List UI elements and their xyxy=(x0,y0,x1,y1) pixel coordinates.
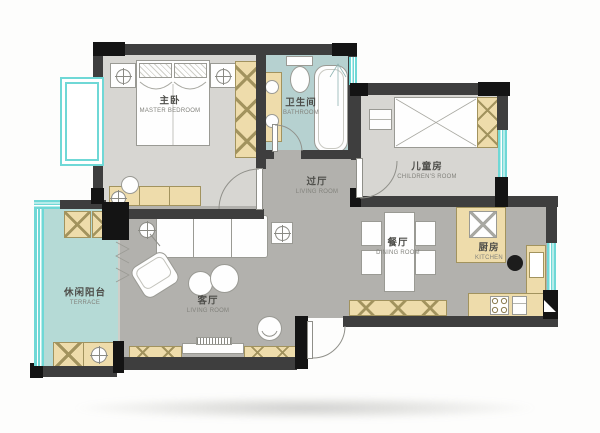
hallway-label-zh: 过厅 xyxy=(292,178,342,189)
dining-room-label-en: DINING ROOM xyxy=(376,249,420,256)
floor-lamp-icon xyxy=(139,222,155,238)
bathroom-door-leaf xyxy=(272,124,278,152)
stool xyxy=(121,176,139,194)
window-balcony-corner xyxy=(34,200,60,209)
entry-door-leaf xyxy=(307,321,313,359)
balcony-cabinet xyxy=(64,211,91,238)
balcony-label-en: TERRACE xyxy=(67,299,103,306)
floor-plan: 主卧 MASTER BEDROOM 卫生间 BATHROOM 儿童房 CHILD… xyxy=(0,0,600,433)
master-bedroom-label: 主卧 MASTER BEDROOM xyxy=(134,97,205,116)
wall-balcony-bottom xyxy=(33,366,117,377)
wall-children-bottom xyxy=(350,196,558,207)
desk xyxy=(369,109,392,130)
wall-children-right xyxy=(497,95,508,130)
coffee-table xyxy=(188,271,213,296)
kitchen-sink xyxy=(507,255,523,271)
dining-room-label: 餐厅 DINING ROOM xyxy=(372,239,424,258)
stove xyxy=(490,296,509,315)
living-room-label: 客厅 LIVING ROOM xyxy=(183,297,233,316)
toilet-bowl xyxy=(290,66,310,93)
corner-block xyxy=(350,83,368,96)
wall-kitchen-right xyxy=(546,207,557,243)
lamp-icon xyxy=(216,69,231,84)
balcony-label-zh: 休闲阳台 xyxy=(64,289,106,300)
refrigerator xyxy=(469,211,497,238)
kitchen-label-en: KITCHEN xyxy=(475,254,503,261)
hallway-label: 过厅 LIVING ROOM xyxy=(292,178,342,197)
oven xyxy=(512,296,527,315)
master-bedroom-label-en: MASTER BEDROOM xyxy=(140,107,201,114)
tv xyxy=(196,337,232,345)
children-room-label-zh: 儿童房 xyxy=(392,163,462,174)
lamp-icon xyxy=(275,226,290,241)
wall-living-bottom xyxy=(122,357,297,370)
bathroom-label-zh: 卫生间 xyxy=(280,99,322,110)
window-children-room xyxy=(498,130,507,177)
balcony-label: 休闲阳台 TERRACE xyxy=(64,289,106,308)
pillow xyxy=(139,63,172,78)
bathroom-label-en: BATHROOM xyxy=(283,109,319,116)
corner-block xyxy=(93,42,125,56)
corner-block xyxy=(478,82,510,96)
plan-drop-shadow xyxy=(70,396,540,420)
corner-block xyxy=(113,341,124,373)
window-kitchen xyxy=(547,243,556,290)
tap-icon xyxy=(91,347,107,363)
window-balcony xyxy=(34,200,44,366)
lamp-icon xyxy=(116,69,131,84)
master-door-leaf xyxy=(256,168,263,210)
corner-block xyxy=(543,290,558,319)
corner-block xyxy=(91,188,104,204)
children-door-leaf xyxy=(356,158,363,198)
hallway-label-en: LIVING ROOM xyxy=(296,188,338,195)
children-room-label: 儿童房 CHILDREN'S ROOM xyxy=(392,163,462,182)
wall-dining-bottom xyxy=(343,316,558,327)
shoe-cabinet xyxy=(349,300,447,316)
children-bed xyxy=(394,97,478,148)
wardrobe-children xyxy=(477,97,498,148)
living-room-label-zh: 客厅 xyxy=(183,297,233,308)
window-bathroom xyxy=(349,57,357,85)
bathroom-label: 卫生间 BATHROOM xyxy=(280,99,322,118)
corner-block xyxy=(102,202,129,240)
pillow xyxy=(174,63,207,78)
wall-top xyxy=(93,44,357,55)
corner-block xyxy=(332,43,357,56)
kitchen-label-zh: 厨房 xyxy=(473,244,506,255)
round-chair xyxy=(257,316,282,341)
master-bedroom-label-zh: 主卧 xyxy=(134,97,205,108)
kitchen-counter-right xyxy=(526,245,546,295)
kitchen-label: 厨房 KITCHEN xyxy=(473,244,506,263)
bay-window-master xyxy=(60,77,104,166)
coffee-table xyxy=(210,264,239,293)
dining-room-label-zh: 餐厅 xyxy=(372,239,424,250)
sofa xyxy=(156,215,268,258)
living-room-label-en: LIVING ROOM xyxy=(187,307,229,314)
sink xyxy=(265,80,279,94)
toilet-tank xyxy=(286,56,313,66)
wall-bathroom-bottom-right xyxy=(301,150,357,159)
corner-block xyxy=(495,177,508,207)
children-room-label-en: CHILDREN'S ROOM xyxy=(397,173,457,180)
